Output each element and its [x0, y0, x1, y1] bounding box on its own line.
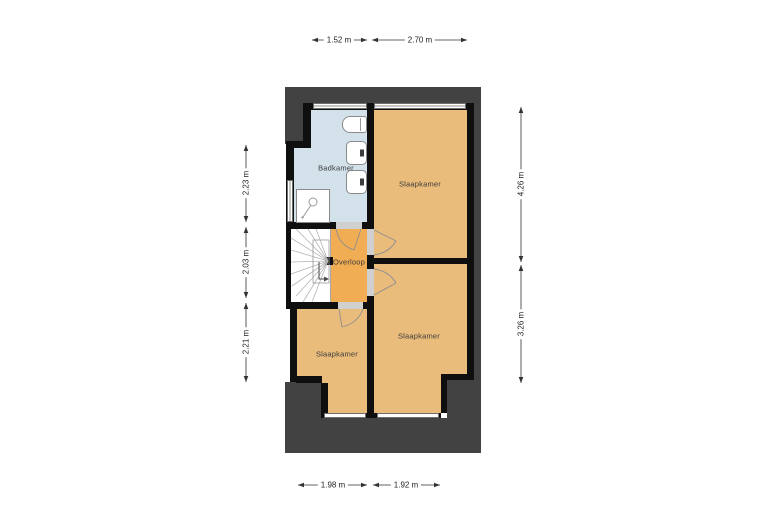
dim-top-1: 1.52 m [324, 36, 354, 45]
room-label-slaapkamer-mid-right: Slaapkamer [398, 332, 440, 341]
door-arc-topright-bedroom [374, 230, 396, 255]
room-label-overloop: Overloop [333, 258, 365, 267]
dim-left-1: 2.23 m [242, 168, 251, 198]
plan-annotations-overlay [0, 0, 768, 527]
room-label-badkamer: Badkamer [318, 164, 354, 173]
dim-left-2: 2.03 m [242, 247, 251, 277]
door-arc-bottomleft-bedroom [339, 309, 363, 327]
door-arc-midright-bedroom [374, 269, 396, 295]
dimension-lines [246, 40, 521, 485]
dim-left-3: 2.21 m [242, 327, 251, 357]
room-label-slaapkamer-bottom-left: Slaapkamer [316, 350, 358, 359]
dim-top-2: 2.70 m [405, 36, 435, 45]
dim-right-2: 3.26 m [517, 309, 526, 339]
dim-right-1: 4.26 m [517, 169, 526, 199]
room-label-slaapkamer-top-right: Slaapkamer [399, 180, 441, 189]
shower-drain-icon [301, 198, 317, 219]
dim-bottom-2: 1.92 m [391, 481, 421, 490]
dim-bottom-1: 1.98 m [318, 481, 348, 490]
dimension-arrowheads [244, 38, 524, 488]
door-arc-bathroom [336, 229, 361, 250]
floor-plan: Badkamer Slaapkamer Overloop Slaapkamer … [0, 0, 768, 527]
